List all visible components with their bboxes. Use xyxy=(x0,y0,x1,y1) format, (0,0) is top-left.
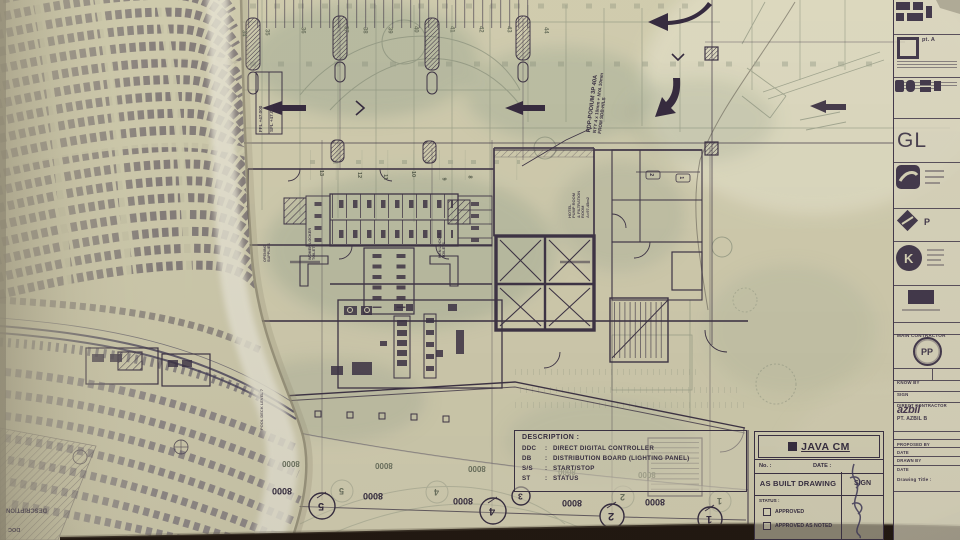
ghost-grid-bubble: 2 xyxy=(620,491,625,501)
legend-meaning: DISTRIBUTION BOARD (LIGHTING PANEL) xyxy=(553,454,690,464)
pump-room-line: A=97.45m2 xyxy=(586,191,590,218)
direct-contractor-bar: DIRECT CONTRACTOR xyxy=(894,392,960,403)
mirrored-doc-label: DOC xyxy=(8,526,20,532)
legend-meaning: DIRECT DIGITAL CONTROLLER xyxy=(553,444,654,454)
pp-logo: PP xyxy=(913,337,942,366)
legend-abbr: ST xyxy=(522,474,545,484)
stamp-box-8 xyxy=(894,286,960,323)
level-sfl: SFL +47.000 xyxy=(269,105,274,132)
ghost-grid-bubble: 1 xyxy=(717,495,722,505)
date-row-2: DATE xyxy=(894,457,960,466)
ornate-logo-icon xyxy=(894,78,944,96)
bar-logo-icon xyxy=(894,286,948,314)
stamp-box-7: K xyxy=(894,242,960,286)
ghost-dim-label: 8000 xyxy=(375,460,393,469)
cell-tag: 1 xyxy=(678,176,684,179)
grid-number: 12 xyxy=(356,172,362,178)
signature-scribble xyxy=(820,458,900,540)
status-approved-row: APPROVED xyxy=(763,508,804,516)
room-label-women-locker: WOMEN LOCKER TOILETS xyxy=(308,228,316,260)
legend-colon: : xyxy=(545,474,553,484)
block-logo-icon xyxy=(894,0,936,26)
blueprint-photo: 34 35 36 37 38 39 40 41 42 43 44 13 12 1… xyxy=(0,0,960,540)
legend-abbr: S/S xyxy=(522,464,545,474)
grid-number: 9 xyxy=(441,177,447,180)
ghost-dim-label: 8000 xyxy=(282,458,300,467)
grid-number: 38 xyxy=(361,27,368,34)
grid-number: 11 xyxy=(382,174,388,180)
dim-label: 8000 xyxy=(272,485,292,495)
ghost-dim-label: 8000 xyxy=(468,463,486,472)
legend-row-ss: S/S : START/STOP xyxy=(522,464,746,474)
room-label-men-locker: MEN LOCKER TOILETS xyxy=(438,232,446,258)
azbil-box: azbil PT. AZBIL B xyxy=(894,403,960,432)
grid-number: 41 xyxy=(448,26,455,33)
status-label: STATUS : xyxy=(759,498,780,503)
legend-colon: : xyxy=(545,444,553,454)
blank-title-area xyxy=(894,492,960,534)
legend-row-st: ST : STATUS xyxy=(522,474,746,484)
grid-number: 44 xyxy=(542,27,549,34)
date-row-1: DATE xyxy=(894,440,960,448)
company-logo-icon xyxy=(788,442,797,451)
grid-number: 42 xyxy=(477,26,484,33)
azbil-company: PT. AZBIL B xyxy=(897,416,957,422)
grid-number: 39 xyxy=(386,27,393,34)
level-ffl: FFL +47.000 xyxy=(258,106,263,132)
stamp-text-line xyxy=(897,67,957,69)
dim-label: 8000 xyxy=(363,490,383,500)
grid-number: 36 xyxy=(299,27,306,34)
grid-number: 10 xyxy=(410,171,416,177)
description-title: DESCRIPTION : xyxy=(522,434,746,441)
azbil-logo: azbil xyxy=(897,405,957,416)
swoosh-logo-icon xyxy=(894,163,948,193)
stamp-text-line xyxy=(897,61,957,63)
square-logo-icon xyxy=(897,37,919,59)
stamp-box-5 xyxy=(894,163,960,209)
legend-abbr: DB xyxy=(522,454,545,464)
room-label-pool-deck: POOL DECK LEVEL 7 xyxy=(260,389,264,430)
mirrored-description-label: DESCRIPTION xyxy=(6,506,47,513)
know-by-row: KNOW BY xyxy=(894,369,960,381)
checkbox-approved xyxy=(763,508,771,516)
drawing-title-row: Drawing Title : xyxy=(894,466,960,492)
room-label-line: TOILETS xyxy=(312,228,316,260)
contractor-stamp-strip: pt. A GL P K xyxy=(893,0,960,540)
legend-abbr: DDC xyxy=(522,444,545,454)
grid-bubble-1: 1 xyxy=(706,513,712,525)
grid-number: 40 xyxy=(412,26,419,33)
stamp-box-3 xyxy=(894,78,960,119)
stamp-box-4: GL xyxy=(894,119,960,163)
room-label-pump-room: HOTEL PUMP ROOM & FILTRATION ROOM A=97.4… xyxy=(568,191,590,218)
grid-number: 43 xyxy=(505,26,512,33)
stamp-box-2: pt. A xyxy=(894,35,960,78)
grid-number: 8 xyxy=(467,175,473,178)
diamond-logo-icon: P xyxy=(894,209,948,235)
stamp-box-1 xyxy=(894,0,960,35)
grid-bubble-3: 3 xyxy=(518,491,523,500)
room-label-line: TOILETS xyxy=(442,232,446,258)
checkbox-approved-as-noted xyxy=(763,522,771,530)
ghost-grid-bubble: 4 xyxy=(434,486,439,496)
approved-label: APPROVED xyxy=(775,509,804,515)
proposed-by-row: PROPOSED BY xyxy=(894,432,960,440)
stamp-text-line xyxy=(897,64,957,66)
dim-label: 8000 xyxy=(453,495,473,505)
legend-colon: : xyxy=(545,454,553,464)
sign-row: SIGN xyxy=(894,381,960,392)
drawing-title-label: Drawing Title : xyxy=(897,477,932,482)
legend-colon: : xyxy=(545,464,553,474)
description-legend-box: DESCRIPTION : DDC : DIRECT DIGITAL CONTR… xyxy=(514,430,747,492)
main-contractor-bar: MAIN CONTRACTOR xyxy=(894,323,960,335)
diamond-p-letter: P xyxy=(924,217,930,227)
grid-bubble-5: 5 xyxy=(318,500,324,512)
pp-stamp-box: PP xyxy=(894,335,960,369)
grid-number: 37 xyxy=(342,26,349,33)
stamp-box-6: P xyxy=(894,209,960,242)
cell-tag: 2 xyxy=(648,173,654,176)
grid-bubble-2: 2 xyxy=(608,510,614,522)
dim-label: 8000 xyxy=(562,497,582,507)
company-name: JAVA CM xyxy=(801,441,850,453)
no-label: No. : xyxy=(759,463,771,469)
legend-meaning: START/STOP xyxy=(553,464,595,474)
room-label-line: SUPPLIES xyxy=(267,243,271,262)
title-block-header: JAVA CM xyxy=(758,435,880,458)
grid-number: 34 xyxy=(240,30,247,37)
svg-text:K: K xyxy=(904,251,914,266)
legend-meaning: STATUS xyxy=(553,474,579,484)
k-circle-logo-icon: K xyxy=(894,242,948,276)
ghost-grid-bubble: 5 xyxy=(339,485,344,495)
pt-a-label: pt. A xyxy=(922,37,935,43)
drawn-by-row: DRAWN BY xyxy=(894,448,960,457)
cell-divider xyxy=(932,369,933,380)
legend-row-db: DB : DISTRIBUTION BOARD (LIGHTING PANEL) xyxy=(522,454,746,464)
legend-row-ddc: DDC : DIRECT DIGITAL CONTROLLER xyxy=(522,444,746,454)
grid-bubble-4: 4 xyxy=(489,505,495,517)
room-label-supplies: OPENING SUPPLIES xyxy=(263,243,271,262)
dim-label: 8000 xyxy=(645,496,665,506)
gl-logo: GL xyxy=(897,129,927,153)
grid-number: 13 xyxy=(318,170,324,176)
grid-number: 35 xyxy=(263,29,270,36)
